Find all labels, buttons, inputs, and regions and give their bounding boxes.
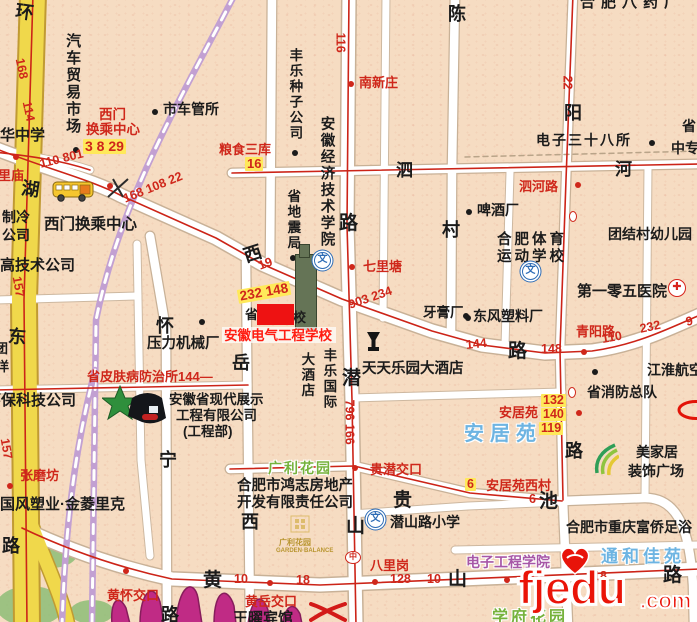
- route-number: 132: [541, 394, 566, 407]
- map-label: 潜: [342, 368, 361, 390]
- red-highlight-box: [257, 304, 294, 325]
- route-number: 10: [234, 573, 248, 586]
- route-number: 3 8 29: [83, 139, 126, 154]
- map-label: 湖: [20, 178, 41, 201]
- map-label: 美家居: [636, 445, 678, 461]
- map-label: 环: [14, 1, 35, 24]
- map-label: 潜山路小学: [390, 515, 460, 531]
- map-label: 路: [508, 341, 527, 363]
- map-label: 省地震局: [285, 189, 300, 251]
- route-number: 148: [541, 343, 562, 356]
- map-label: 合肥八药厂: [580, 0, 685, 11]
- bus-icon: [52, 179, 94, 203]
- stop-marker-icon: [568, 387, 576, 398]
- school-icon: 文: [367, 511, 384, 528]
- route-number: 157: [0, 437, 14, 460]
- map-label: 环保科技公司: [0, 392, 76, 409]
- map-label: 东风塑料厂: [473, 309, 543, 325]
- map-label: 公司: [2, 228, 30, 244]
- school-icon: 文: [314, 252, 331, 269]
- map-label: 啤酒厂: [477, 203, 519, 219]
- map-label: 贵潜交口: [370, 463, 422, 478]
- map-label: 中专: [671, 141, 697, 157]
- gardenlogo-icon: [277, 515, 323, 541]
- map-label: 团结村幼儿园: [608, 227, 692, 243]
- hospital-icon: ✚: [668, 279, 686, 297]
- map-label: 池: [539, 491, 558, 513]
- stop-dot: [581, 349, 587, 355]
- map-label: 黄岳交口: [245, 595, 297, 610]
- map-label: 贵: [393, 490, 412, 512]
- stop-dot: [466, 209, 472, 215]
- map-label: 岳: [232, 353, 250, 374]
- stop-dot: [576, 410, 582, 416]
- stop-dot: [199, 319, 205, 325]
- map-label: 大酒店: [299, 352, 314, 399]
- map-label: 第一零五医院: [577, 283, 667, 300]
- map-label: 广利花园: [268, 461, 332, 477]
- map-label: 合肥市鸿志房地产: [237, 478, 353, 495]
- map-label: 山: [448, 569, 467, 591]
- watermark-tld: .com: [640, 588, 691, 614]
- map-label: 安徽经济技术学院: [318, 116, 335, 248]
- map-label: 黄怀交口: [107, 589, 159, 604]
- route-number: 22: [560, 76, 573, 90]
- zhong-icon: 中: [345, 551, 361, 564]
- map-label: 路: [161, 605, 179, 622]
- map-label: 市车管所: [163, 102, 219, 118]
- map-label: 省消防总队: [587, 385, 657, 401]
- redx-icon: [309, 602, 347, 622]
- map-label: 七里塘: [363, 260, 402, 275]
- map-label: 牙膏厂: [423, 305, 464, 320]
- map-label: 换乘中心: [86, 122, 140, 137]
- stop-dot: [152, 109, 158, 115]
- map-label: 装饰广场: [628, 464, 684, 480]
- map-label: 路: [339, 213, 358, 235]
- stop-dot: [349, 264, 355, 270]
- map-label: 粮食三库: [219, 143, 271, 158]
- map-label: GARDEN·BALANCE: [276, 548, 333, 555]
- map-label: 省: [682, 119, 696, 135]
- map-label: 工程有限公司: [176, 408, 257, 423]
- route-number: 128: [390, 573, 411, 586]
- map-label: 丰乐种子公司: [287, 48, 302, 141]
- route-number: 6: [465, 478, 476, 491]
- watermark-name: fjedu: [518, 560, 625, 615]
- map-label: 西门: [99, 107, 126, 122]
- map-label: 村: [442, 220, 460, 241]
- map-label: 河: [615, 160, 632, 179]
- route-number: 116: [333, 33, 346, 53]
- map-label: 国风塑业·金菱里克: [0, 496, 125, 513]
- route-number: 18: [296, 574, 310, 587]
- redoval-icon: [676, 400, 697, 420]
- map-label: 安徽电气工程学校: [224, 328, 332, 343]
- map-label: 宁: [159, 450, 177, 471]
- map-label: 江淮航空: [647, 363, 697, 379]
- stop-dot: [13, 154, 19, 160]
- stop-dot: [7, 483, 13, 489]
- map-label: 路: [2, 536, 20, 557]
- map-label: 张磨坊: [20, 469, 59, 484]
- stop-dot: [292, 150, 298, 156]
- route-number: 6: [529, 493, 536, 506]
- route-number: 119: [539, 422, 563, 435]
- map-label: 西门换乘中心: [44, 216, 137, 234]
- map-label: 制冷: [2, 210, 30, 226]
- stop-dot: [575, 182, 581, 188]
- route-number: 144: [465, 337, 487, 352]
- school-icon: 文: [522, 263, 539, 280]
- map-label: 黄: [203, 570, 222, 592]
- map-label: 华中学: [0, 127, 45, 144]
- route-number: 16: [245, 157, 263, 171]
- route-number: 157: [10, 275, 27, 298]
- stop-dot: [352, 465, 358, 471]
- map-label: 安徽省现代展示: [169, 392, 264, 407]
- map-label: 汽车贸易市场: [64, 33, 81, 135]
- map-label: 天天乐园大酒店: [362, 361, 464, 378]
- stop-dot: [348, 81, 354, 87]
- watermark-fjedu: fjedu .com: [500, 540, 697, 622]
- map-label: 合肥体育: [497, 232, 567, 249]
- route-number: 10: [427, 573, 441, 586]
- map-label: 安居苑: [499, 406, 538, 421]
- map-label: 洋: [0, 360, 9, 375]
- map-label: 电子三十八所: [536, 133, 632, 149]
- map-canvas[interactable]: fjedu .com 汽车贸易市场华中学市车管所丰乐种子公司西门换乘中心高技术公…: [0, 0, 697, 622]
- map-label: 压力机械厂: [147, 336, 220, 353]
- map-label: 校: [293, 311, 306, 326]
- map-label: 泗河路: [519, 180, 558, 195]
- map-label: (工程部): [183, 424, 233, 439]
- map-label: 山: [346, 516, 365, 538]
- map-label: 里庙: [0, 169, 24, 184]
- map-label: 王曜宾馆: [233, 610, 293, 622]
- map-label: 安居苑: [464, 423, 542, 446]
- map-label: 西: [241, 512, 259, 533]
- swirl-icon: [593, 443, 619, 475]
- map-label: 泗: [396, 161, 413, 180]
- stop-dot: [123, 568, 129, 574]
- map-label: 开发有限责任公司: [237, 495, 353, 512]
- building-footprint: [299, 244, 310, 258]
- map-label: 丰乐国际: [321, 348, 336, 410]
- map-label: 陈: [448, 4, 466, 25]
- route-number: 796 166: [342, 400, 355, 445]
- stop-dot: [649, 140, 655, 146]
- stop-dot: [592, 369, 598, 375]
- map-label: 路: [565, 441, 583, 462]
- map-label: 省皮肤病防治所144—: [87, 370, 213, 385]
- route-number: 140: [541, 408, 566, 421]
- stop-dot: [372, 579, 378, 585]
- stop-marker-icon: [569, 211, 577, 222]
- map-label: 阳: [564, 103, 582, 124]
- map-label: 南新庄: [359, 76, 398, 91]
- map-label: 东: [7, 326, 27, 348]
- map-label: 怀: [156, 316, 174, 337]
- starlogo-icon: [102, 384, 174, 432]
- goblet-icon: [366, 331, 381, 353]
- crossing-icon: [106, 177, 130, 199]
- route-number: 114: [20, 100, 37, 122]
- stop-dot: [267, 580, 273, 586]
- map-label: 高技术公司: [0, 257, 75, 274]
- map-label: 合肥市重庆富侨足浴: [566, 520, 692, 536]
